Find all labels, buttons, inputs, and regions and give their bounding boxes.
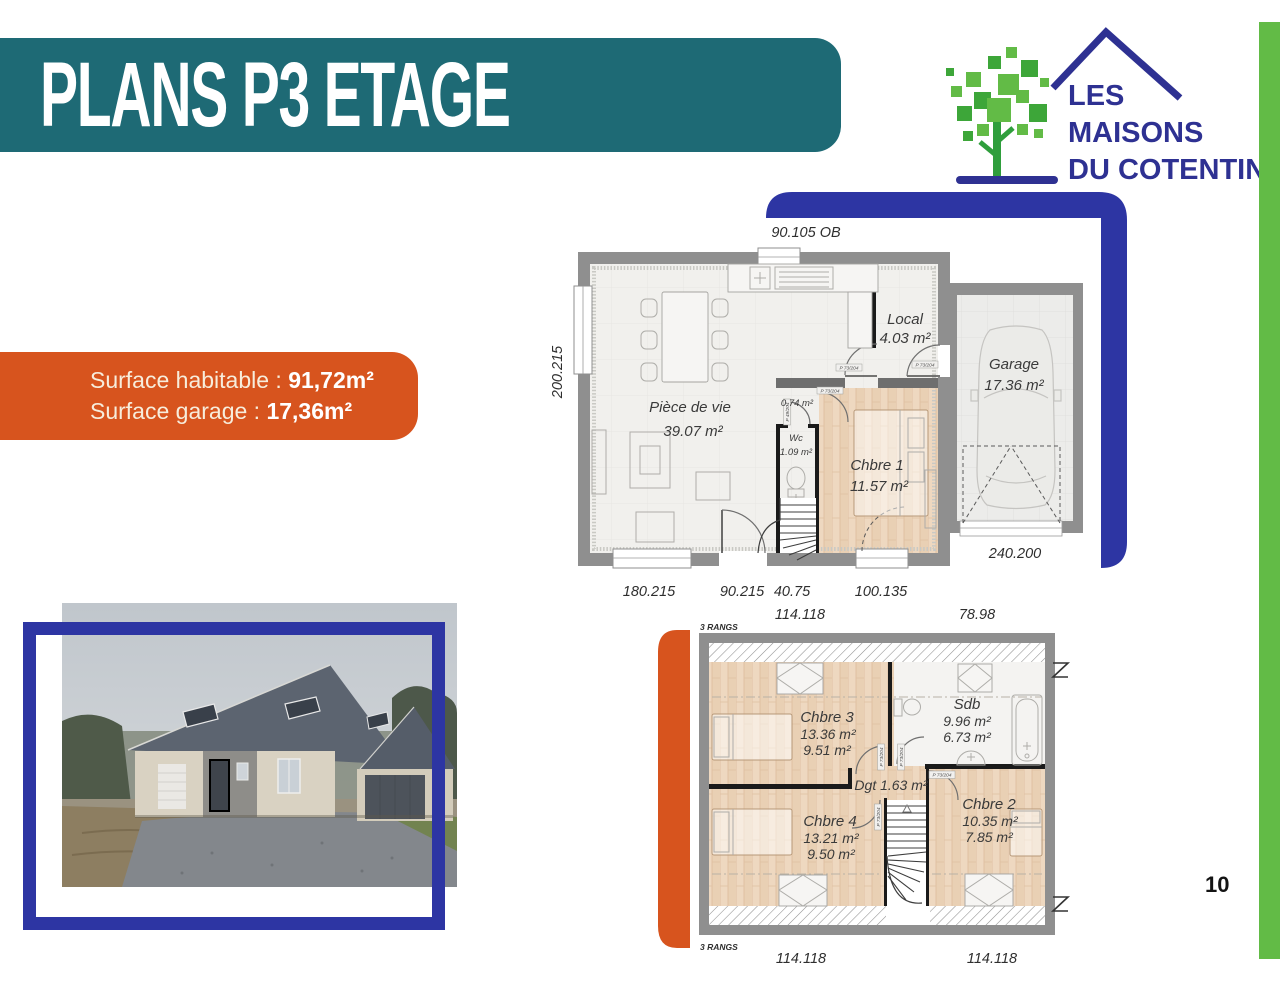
- room-label-piece-de-vie: Pièce de vie: [649, 399, 731, 416]
- logo-line1: LES: [1068, 80, 1124, 112]
- room-label-dgt: Dgt 1.63 m²: [854, 777, 928, 793]
- room-area-local: 4.03 m²: [880, 330, 932, 347]
- dim-top: 90.105 OB: [771, 225, 841, 241]
- svg-text:P 73/204: P 73/204: [820, 389, 839, 395]
- room-label-local: Local: [887, 311, 924, 328]
- room-area-chbre3: 13.36 m²: [800, 726, 857, 742]
- dim-b3: 40.75: [774, 584, 811, 600]
- surface-banner: Surface habitable : 91,72m² Surface gara…: [0, 352, 418, 440]
- ground-floor-plan: P 73/204 P 73/204 P 73/204 P 49/204 Pièc…: [545, 185, 1145, 635]
- dim-b4: 100.135: [855, 584, 908, 600]
- logo-line2: MAISONS: [1068, 117, 1203, 149]
- dim-b2: 90.215: [720, 584, 765, 600]
- dim-bottom-left: 114.118: [776, 951, 826, 967]
- car-icon: [971, 326, 1061, 509]
- rangs-label-top: 3 RANGS: [700, 622, 738, 632]
- svg-text:P 73/204: P 73/204: [932, 773, 951, 779]
- svg-text:P 73/204: P 73/204: [876, 807, 882, 826]
- room-label-sdb: Sdb: [954, 696, 981, 713]
- surface-habitable-label: Surface habitable :: [90, 367, 288, 393]
- green-accent-bar: [1259, 22, 1280, 959]
- room-area-piece-de-vie: 39.07 m²: [663, 423, 723, 440]
- photo-frame: [23, 622, 445, 930]
- dim-bottom-right: 114.118: [967, 951, 1017, 967]
- title-banner: PLANS P3 ETAGE: [0, 38, 841, 152]
- room-label-chbre2: Chbre 2: [962, 796, 1016, 813]
- svg-text:P 73/204: P 73/204: [879, 747, 885, 766]
- room-label-chbre4: Chbre 4: [803, 813, 856, 830]
- velux-icon: [1053, 663, 1068, 677]
- dim-left: 200.215: [550, 345, 566, 399]
- svg-text:P 73/204: P 73/204: [915, 363, 934, 369]
- room-label-garage: Garage: [989, 356, 1039, 373]
- stair-window: [886, 906, 930, 925]
- brochure-page: PLANS P3 ETAGE LES M: [0, 0, 1280, 989]
- velux-icon: [1053, 897, 1068, 911]
- upper-floor-plan: P 73/204 P 73/204 P 73/204 P 73/204 Chbr…: [650, 615, 1080, 980]
- room-area2-sdb: 6.73 m²: [943, 729, 992, 745]
- tree-logo-icon: [946, 47, 1058, 184]
- room-label-wc: Wc: [789, 433, 803, 444]
- room-label-chbre1: Chbre 1: [850, 457, 903, 474]
- surface-habitable-line: Surface habitable : 91,72m²: [90, 365, 418, 396]
- surface-garage-label: Surface garage :: [90, 398, 266, 424]
- rangs-label-bottom: 3 RANGS: [700, 942, 738, 952]
- room-area2-chbre4: 9.50 m²: [807, 846, 856, 862]
- room-area-chbre4: 13.21 m²: [803, 830, 860, 846]
- logo-line3: DU COTENTIN: [1068, 154, 1266, 186]
- bed-icon-chbre4: [712, 809, 792, 855]
- room-area-garage: 17.36 m²: [984, 377, 1044, 394]
- room-area-wc: 1.09 m²: [780, 447, 813, 458]
- room-label-chbre3: Chbre 3: [800, 709, 854, 726]
- surface-garage-line: Surface garage : 17,36m²: [90, 396, 418, 427]
- orange-accent-bar: [658, 630, 690, 948]
- page-title: PLANS P3 ETAGE: [40, 49, 510, 141]
- svg-text:P 73/204: P 73/204: [839, 366, 858, 372]
- company-logo: LES MAISONS DU COTENTIN: [930, 14, 1270, 200]
- page-number: 10: [1205, 872, 1229, 898]
- room-area-chbre1: 11.57 m²: [850, 478, 909, 495]
- bed-icon-chbre3: [712, 714, 792, 760]
- attic-hatch-top: [709, 643, 1045, 662]
- surface-garage-value: 17,36m²: [266, 398, 352, 424]
- dim-garage: 240.200: [988, 546, 1041, 562]
- svg-text:P 73/204: P 73/204: [899, 747, 905, 766]
- room-area-chbre2: 10.35 m²: [962, 813, 1019, 829]
- room-area-sdb: 9.96 m²: [943, 713, 992, 729]
- room-area2-chbre2: 7.85 m²: [965, 829, 1014, 845]
- dim-b1: 180.215: [623, 584, 676, 600]
- room-area2-chbre3: 9.51 m²: [803, 742, 852, 758]
- surface-habitable-value: 91,72m²: [288, 367, 374, 393]
- attic-hatch-bottom: [709, 906, 1045, 925]
- room-area-vestibule: 0.74 m²: [781, 398, 814, 409]
